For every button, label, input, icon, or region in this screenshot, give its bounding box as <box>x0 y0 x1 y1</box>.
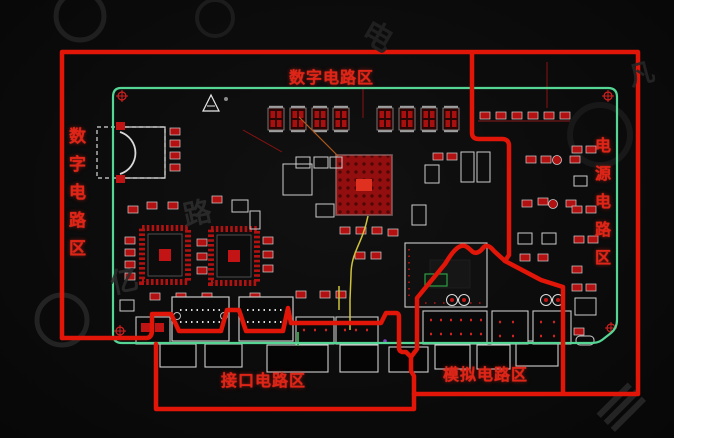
transistor-pairs <box>447 295 564 306</box>
silkscreen-triangle-mark <box>203 95 228 111</box>
pcb-zoning-screenshot: 亿 路 电 凡 <box>0 0 707 445</box>
edge-connectors <box>136 297 571 344</box>
power-jack-connector <box>97 122 180 183</box>
zone-label-power: 电源电路区 <box>588 137 612 277</box>
zone-label-interface: 接口电路区 <box>221 367 306 391</box>
zone-label-digital-top: 数字电路区 <box>289 64 374 88</box>
bga-chip <box>336 155 392 215</box>
zone-label-analog: 模拟电路区 <box>443 361 528 385</box>
letterbox-right <box>674 0 707 445</box>
zone-label-digital-left: 数字电路区 <box>63 127 88 267</box>
letterbox-bottom <box>0 438 707 445</box>
